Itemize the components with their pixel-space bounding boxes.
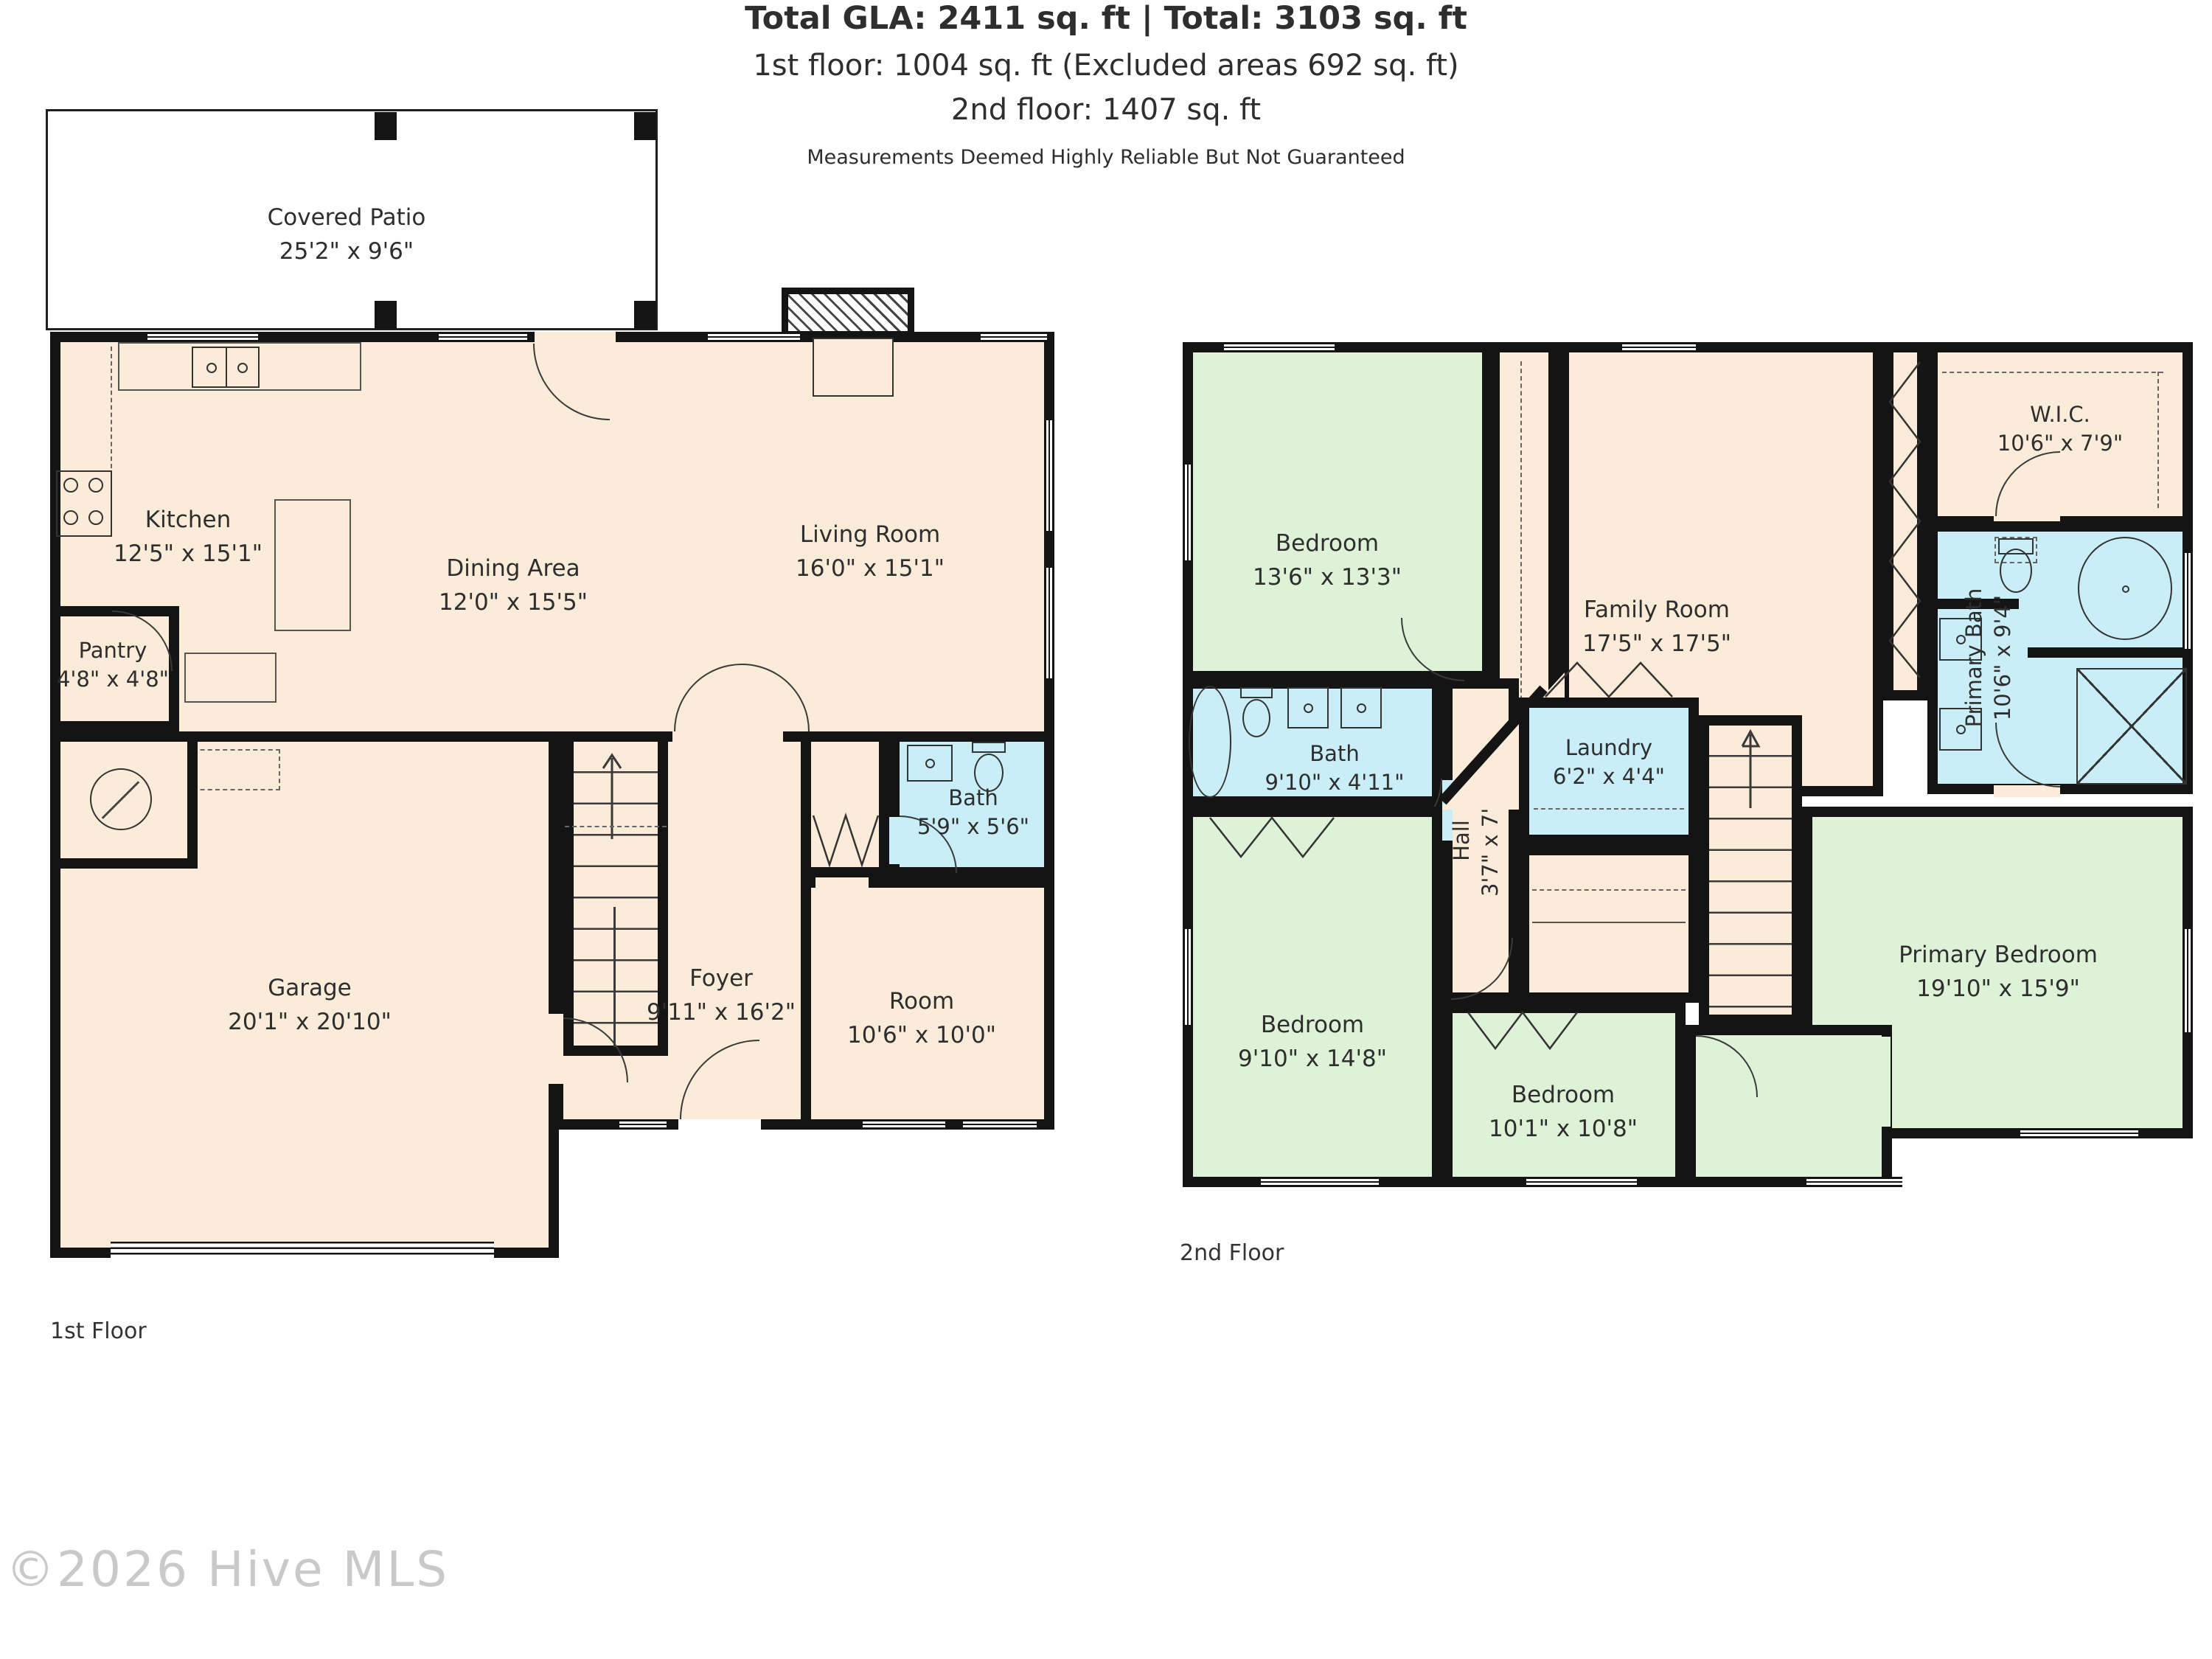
room-label: Room 10'6" x 10'0" xyxy=(811,990,1032,1047)
room-name: Bath xyxy=(1253,743,1416,765)
wic-label: W.I.C. 10'6" x 7'9" xyxy=(1942,404,2178,454)
bath1-label: Bath 5'9" x 5'6" xyxy=(900,787,1047,838)
floorplan-page: { "first_floor": { "label": "1st Floor",… xyxy=(0,0,2212,1659)
laundry-label: Laundry 6'2" x 4'4" xyxy=(1534,737,1684,787)
window xyxy=(1224,342,1335,352)
sink-drain xyxy=(1357,703,1366,713)
room-name: Family Room xyxy=(1546,599,1767,622)
room-dims: 10'1" x 10'8" xyxy=(1453,1118,1674,1141)
sink-drain xyxy=(237,363,248,373)
window xyxy=(1183,465,1193,560)
window xyxy=(1044,420,1054,531)
total-gla: Total GLA: 2411 sq. ft | Total: 3103 sq.… xyxy=(0,0,2212,37)
first-floor-plan: Covered Patio 25'2" x 9'6" Kitchen 12'5"… xyxy=(44,103,1069,1312)
kitchen-label: Kitchen 12'5" x 15'1" xyxy=(77,509,299,566)
pantry-label: Pantry 4'8" x 4'8" xyxy=(46,640,179,690)
room-dims: 19'10" x 15'9" xyxy=(1829,978,2168,1001)
patio-door-opening xyxy=(535,332,616,342)
front-door-opening xyxy=(678,1119,761,1130)
sink-drain xyxy=(925,759,935,768)
window xyxy=(963,1119,1037,1130)
mls-watermark: ©2026 Hive MLS xyxy=(6,1541,449,1598)
room-name: Pantry xyxy=(46,640,179,661)
stair-rail xyxy=(613,907,616,1047)
bathtub-icon xyxy=(1189,686,1231,798)
room-dims: 10'6" x 10'0" xyxy=(811,1024,1032,1047)
first-floor-area: 1st floor: 1004 sq. ft (Excluded areas 6… xyxy=(0,49,2212,83)
patio-post xyxy=(634,301,656,329)
bifold-door-icon xyxy=(1545,662,1673,698)
closet-rod xyxy=(1520,361,1522,745)
second-floor-plan: Bedroom 13'6" x 13'3" W.I.C. 10'6" x 7'9… xyxy=(1180,339,2197,1231)
appliance-line xyxy=(1534,808,1684,810)
bifold-door-icon xyxy=(813,815,879,866)
opening xyxy=(889,817,900,864)
stair-open-line xyxy=(565,826,667,827)
room-dims: 6'2" x 4'4" xyxy=(1534,766,1684,787)
bedroom-2 xyxy=(1183,807,1442,1187)
sink-drain xyxy=(1304,703,1313,713)
disclaimer: Measurements Deemed Highly Reliable But … xyxy=(0,146,2212,169)
room-name: Living Room xyxy=(759,524,981,546)
sink-divider xyxy=(226,348,227,386)
room-name: Bath xyxy=(900,787,1047,809)
room-name: Covered Patio xyxy=(221,206,472,229)
room-name: Dining Area xyxy=(403,557,624,580)
sink-icon xyxy=(1287,687,1329,728)
wall xyxy=(2028,647,2193,658)
room-name: Bedroom xyxy=(1453,1084,1674,1107)
window xyxy=(2183,553,2193,649)
first-floor-label: 1st Floor xyxy=(50,1318,147,1344)
living-label: Living Room 16'0" x 15'1" xyxy=(759,524,981,580)
toilet-tank xyxy=(972,742,1006,753)
window xyxy=(619,1119,667,1130)
room-dims: 20'1" x 20'10" xyxy=(144,1011,476,1034)
primary-bath-label: Primary Bath 10'6" x 9'4" xyxy=(1964,569,2025,746)
bifold-door-icon xyxy=(1889,361,1921,678)
window xyxy=(1183,929,1193,1025)
room-dims: 10'6" x 7'9" xyxy=(1942,433,2178,454)
window xyxy=(147,332,258,342)
window xyxy=(439,332,527,342)
window xyxy=(863,1119,945,1130)
room-dims: 9'10" x 14'8" xyxy=(1202,1048,1423,1071)
closet-line xyxy=(1532,922,1686,923)
room-name: Primary Bath xyxy=(1964,569,1985,746)
area-summary: Total GLA: 2411 sq. ft | Total: 3103 sq.… xyxy=(0,0,2212,189)
room-dims: 16'0" x 15'1" xyxy=(759,557,981,580)
sink-drain xyxy=(206,363,217,373)
sink-icon xyxy=(907,745,953,782)
room-dims: 5'9" x 5'6" xyxy=(900,816,1047,838)
closet-shelf xyxy=(1532,889,1686,891)
room-name: Primary Bedroom xyxy=(1829,944,2168,967)
opening xyxy=(1994,785,2060,797)
window xyxy=(1622,342,1696,352)
bifold-door-icon xyxy=(1467,1012,1578,1050)
sink-icon xyxy=(1340,687,1382,728)
burner xyxy=(63,478,78,493)
burner xyxy=(63,510,78,525)
counter-edge xyxy=(111,347,112,468)
opening xyxy=(815,877,869,888)
primary-bedroom-label: Primary Bedroom 19'10" x 15'9" xyxy=(1829,944,2168,1001)
window xyxy=(1526,1177,1637,1187)
second-floor-area: 2nd floor: 1407 sq. ft xyxy=(0,93,2212,127)
window xyxy=(1806,1177,1902,1187)
room-dims: 17'5" x 17'5" xyxy=(1546,633,1767,655)
closet-shelf xyxy=(1942,372,2163,373)
room-dims: 12'5" x 15'1" xyxy=(77,543,299,566)
kitchen-sink-icon xyxy=(192,347,260,388)
room-dims: 12'0" x 15'5" xyxy=(403,591,624,614)
burner xyxy=(88,478,103,493)
room-dims: 13'6" x 13'3" xyxy=(1217,566,1438,589)
garage-label: Garage 20'1" x 20'10" xyxy=(144,977,476,1034)
dining-label: Dining Area 12'0" x 15'5" xyxy=(403,557,624,614)
opening xyxy=(672,731,783,742)
patio-post xyxy=(375,301,397,329)
window xyxy=(1261,1177,1379,1187)
window xyxy=(2183,929,2193,1032)
room-dims: 9'11" x 16'2" xyxy=(633,1001,810,1024)
window xyxy=(981,332,1047,342)
room-name: Room xyxy=(811,990,1032,1013)
bifold-door-icon xyxy=(1209,817,1335,858)
stairs-up-arrow-icon xyxy=(1736,728,1765,810)
bedroom3-label: Bedroom 10'1" x 10'8" xyxy=(1453,1084,1674,1141)
toilet-icon xyxy=(1242,699,1270,737)
primary-bedroom-floor xyxy=(1804,1037,1891,1127)
second-floor-label: 2nd Floor xyxy=(1180,1240,1284,1266)
stairs-up-arrow-icon xyxy=(597,752,627,841)
closet xyxy=(1519,845,1699,1003)
room-name: Kitchen xyxy=(77,509,299,532)
toilet-tank xyxy=(1240,687,1273,698)
tub-drain xyxy=(2122,585,2129,593)
foyer-label: Foyer 9'11" x 16'2" xyxy=(633,967,810,1024)
cabinet xyxy=(184,653,276,703)
family-room-label: Family Room 17'5" x 17'5" xyxy=(1546,599,1767,655)
bedroom1-label: Bedroom 13'6" x 13'3" xyxy=(1217,532,1438,589)
room-name: Garage xyxy=(144,977,476,1000)
room-dims: 4'8" x 4'8" xyxy=(46,669,179,690)
garage-door xyxy=(111,1242,494,1258)
room-name: Bedroom xyxy=(1202,1014,1423,1037)
room-dims: 25'2" x 9'6" xyxy=(221,240,472,263)
window xyxy=(1044,568,1054,678)
covered-patio-label: Covered Patio 25'2" x 9'6" xyxy=(221,206,472,263)
shower-icon xyxy=(2076,668,2187,785)
room-name: Bedroom xyxy=(1217,532,1438,555)
bedroom2-label: Bedroom 9'10" x 14'8" xyxy=(1202,1014,1423,1071)
room-name: Laundry xyxy=(1534,737,1684,759)
fireplace-icon xyxy=(782,288,914,338)
room-name: W.I.C. xyxy=(1942,404,2178,425)
opening xyxy=(549,1014,563,1084)
room-name: Foyer xyxy=(633,967,810,990)
window xyxy=(2020,1128,2138,1138)
window xyxy=(708,332,800,342)
fireplace-hearth xyxy=(813,338,894,397)
room-dims: 10'6" x 9'4" xyxy=(1992,569,2014,746)
